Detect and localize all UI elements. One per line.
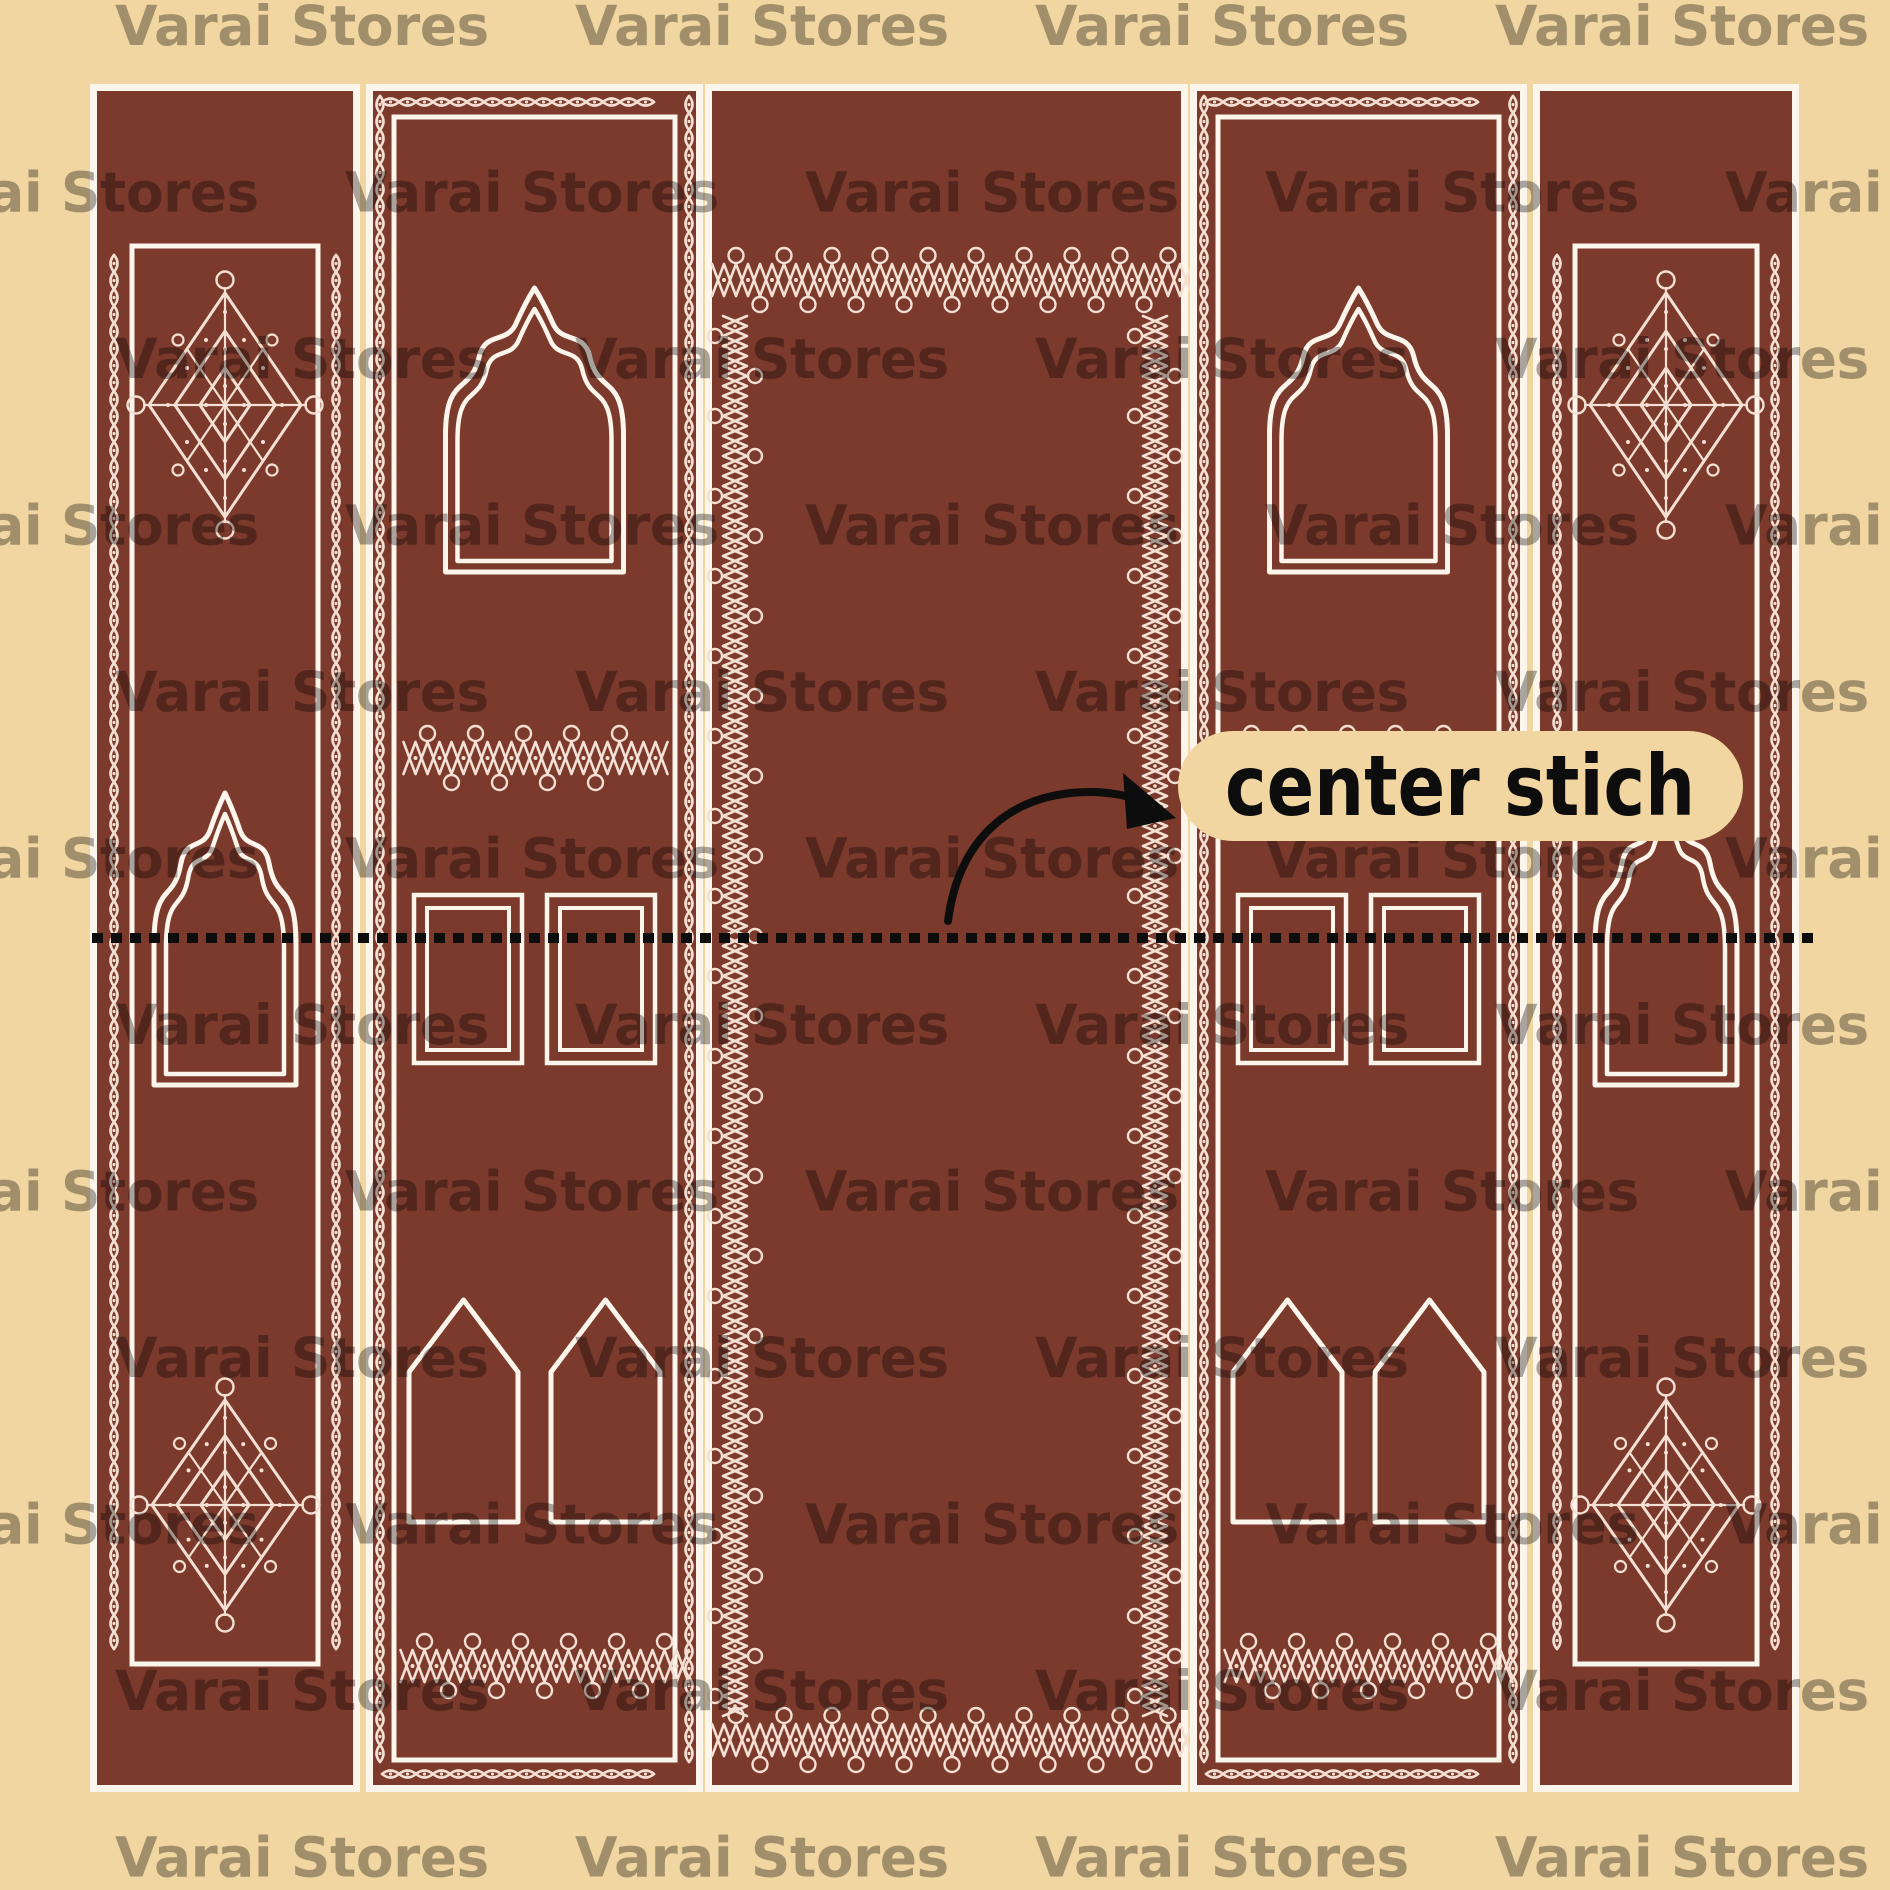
watermark-text: Varai Stores: [115, 1826, 489, 1890]
watermark-text: Varai Stores: [1035, 1659, 1409, 1723]
watermark-text: Varai Stores: [1495, 993, 1869, 1057]
watermark-text: Varai Stores: [345, 827, 719, 891]
watermark-text: Varai Stores: [1495, 327, 1869, 391]
watermark-text: Varai Stores: [345, 1493, 719, 1557]
watermark-text: Varai Stores: [1495, 0, 1869, 58]
watermark-text: Varai Stores: [575, 993, 949, 1057]
center-stitch-label: center stich: [1225, 737, 1695, 835]
watermark-text: Varai Stores: [0, 1160, 259, 1224]
watermark-text: Varai Stores: [805, 494, 1179, 558]
watermark-text: Varai Stores: [115, 327, 489, 391]
watermark-text: Varai Stores: [1265, 161, 1639, 225]
watermark-text: Varai Stores: [575, 327, 949, 391]
watermark-text: Varai Stores: [1725, 161, 1890, 225]
watermark-text: Varai Stores: [575, 1326, 949, 1390]
watermark-text: Varai Stores: [1035, 1326, 1409, 1390]
watermark-text: Varai Stores: [1265, 1160, 1639, 1224]
watermark-text: Varai Stores: [1725, 827, 1890, 891]
watermark-text: Varai Stores: [805, 161, 1179, 225]
watermark-text: Varai Stores: [115, 1326, 489, 1390]
watermark-text: Varai Stores: [0, 827, 259, 891]
watermark-text: Varai Stores: [115, 660, 489, 724]
artwork-canvas: Varai StoresVarai StoresVarai StoresVara…: [0, 0, 1890, 1890]
watermark-text: Varai Stores: [1495, 1659, 1869, 1723]
watermark-text: Varai Stores: [1035, 1826, 1409, 1890]
kolam-design-sheet: Varai StoresVarai StoresVarai StoresVara…: [0, 0, 1890, 1890]
watermark-text: Varai Stores: [1035, 0, 1409, 58]
watermark-text: Varai Stores: [575, 1659, 949, 1723]
watermark-text: Varai Stores: [1725, 494, 1890, 558]
watermark-text: Varai Stores: [1725, 1493, 1890, 1557]
watermark-text: Varai Stores: [345, 161, 719, 225]
watermark-text: Varai Stores: [1495, 1826, 1869, 1890]
watermark-text: Varai Stores: [1495, 1326, 1869, 1390]
watermark-text: Varai Stores: [0, 1493, 259, 1557]
watermark-text: Varai Stores: [0, 161, 259, 225]
watermark-text: Varai Stores: [345, 494, 719, 558]
watermark-text: Varai Stores: [0, 494, 259, 558]
watermark-text: Varai Stores: [1265, 1493, 1639, 1557]
watermark-text: Varai Stores: [805, 1160, 1179, 1224]
watermark-text: Varai Stores: [575, 0, 949, 58]
watermark-text: Varai Stores: [115, 0, 489, 58]
watermark-text: Varai Stores: [805, 1493, 1179, 1557]
watermark-text: Varai Stores: [1495, 660, 1869, 724]
watermark-text: Varai Stores: [115, 1659, 489, 1723]
watermark-text: Varai Stores: [1725, 1160, 1890, 1224]
watermark-text: Varai Stores: [805, 827, 1179, 891]
watermark-text: Varai Stores: [345, 1160, 719, 1224]
watermark-text: Varai Stores: [1035, 660, 1409, 724]
watermark-text: Varai Stores: [1265, 494, 1639, 558]
watermark-text: Varai Stores: [575, 660, 949, 724]
watermark-text: Varai Stores: [1035, 993, 1409, 1057]
watermark-text: Varai Stores: [1035, 327, 1409, 391]
watermark-text: Varai Stores: [575, 1826, 949, 1890]
watermark-text: Varai Stores: [115, 993, 489, 1057]
